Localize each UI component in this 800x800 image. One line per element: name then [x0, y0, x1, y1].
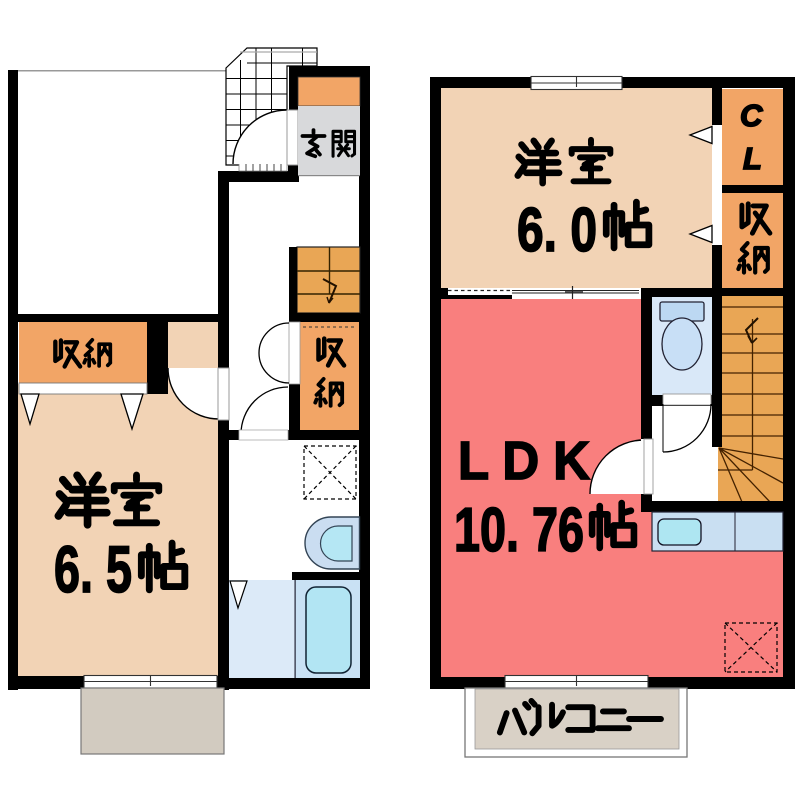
- svg-text:L D K: L D K: [458, 431, 590, 491]
- svg-text:L: L: [743, 141, 762, 176]
- svg-text:10. 76: 10. 76: [454, 496, 584, 565]
- svg-text:6. 5: 6. 5: [54, 532, 132, 606]
- svg-text:6. 0: 6. 0: [517, 196, 597, 265]
- svg-text:C: C: [740, 98, 763, 133]
